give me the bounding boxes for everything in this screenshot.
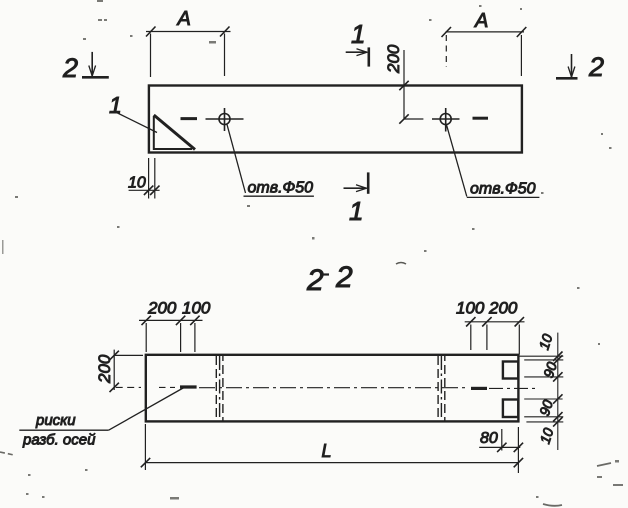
svg-text:A: A <box>474 10 488 32</box>
svg-text:L: L <box>322 441 332 461</box>
svg-text:10: 10 <box>128 175 146 192</box>
svg-text:80: 80 <box>480 430 498 447</box>
svg-text:200: 200 <box>384 44 403 74</box>
svg-text:1: 1 <box>351 19 365 49</box>
svg-text:100: 100 <box>456 299 485 318</box>
svg-text:100: 100 <box>182 299 211 318</box>
svg-text:2: 2 <box>335 261 353 294</box>
svg-text:2: 2 <box>588 52 604 82</box>
svg-text:отв.Ф50: отв.Ф50 <box>470 181 536 198</box>
svg-text:200: 200 <box>95 354 114 384</box>
svg-text:A: A <box>177 8 191 30</box>
svg-text:200: 200 <box>147 299 177 318</box>
svg-text:2: 2 <box>62 53 78 83</box>
svg-text:2: 2 <box>306 264 324 297</box>
svg-text:1: 1 <box>349 196 363 226</box>
svg-text:разб. осей: разб. осей <box>22 432 96 449</box>
svg-text:риски: риски <box>35 412 76 429</box>
svg-text:отв.Ф50: отв.Ф50 <box>248 180 314 197</box>
svg-text:200: 200 <box>488 299 518 318</box>
